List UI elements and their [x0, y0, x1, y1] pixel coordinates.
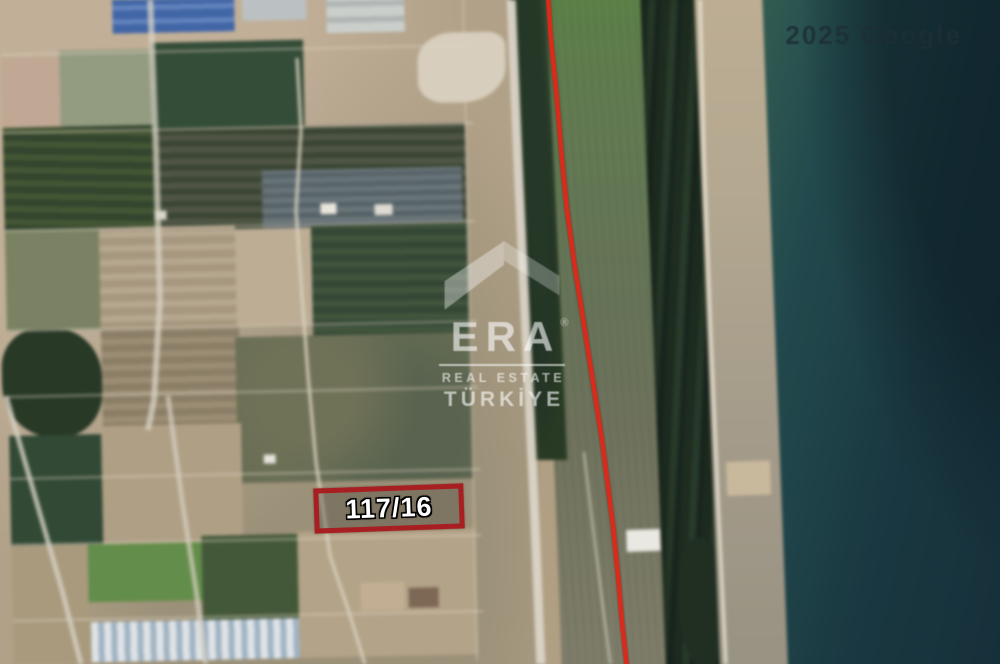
terrain	[0, 0, 1000, 664]
satellite-map: 117/16 ERA® REAL ESTATE TÜRKİYE 2025 Goo…	[0, 0, 1000, 664]
shore-path	[700, 0, 726, 664]
farm-track	[584, 452, 611, 664]
parcel-label: 117/16	[345, 491, 433, 525]
road-line	[148, 0, 160, 430]
road-line	[296, 58, 366, 664]
roads	[0, 0, 1000, 664]
google-attribution: 2025 Google	[785, 20, 962, 51]
road-line	[168, 396, 206, 664]
parcel-117-16-overlay: 117/16	[313, 483, 464, 533]
road-line	[511, 0, 541, 664]
road-line	[6, 396, 82, 664]
